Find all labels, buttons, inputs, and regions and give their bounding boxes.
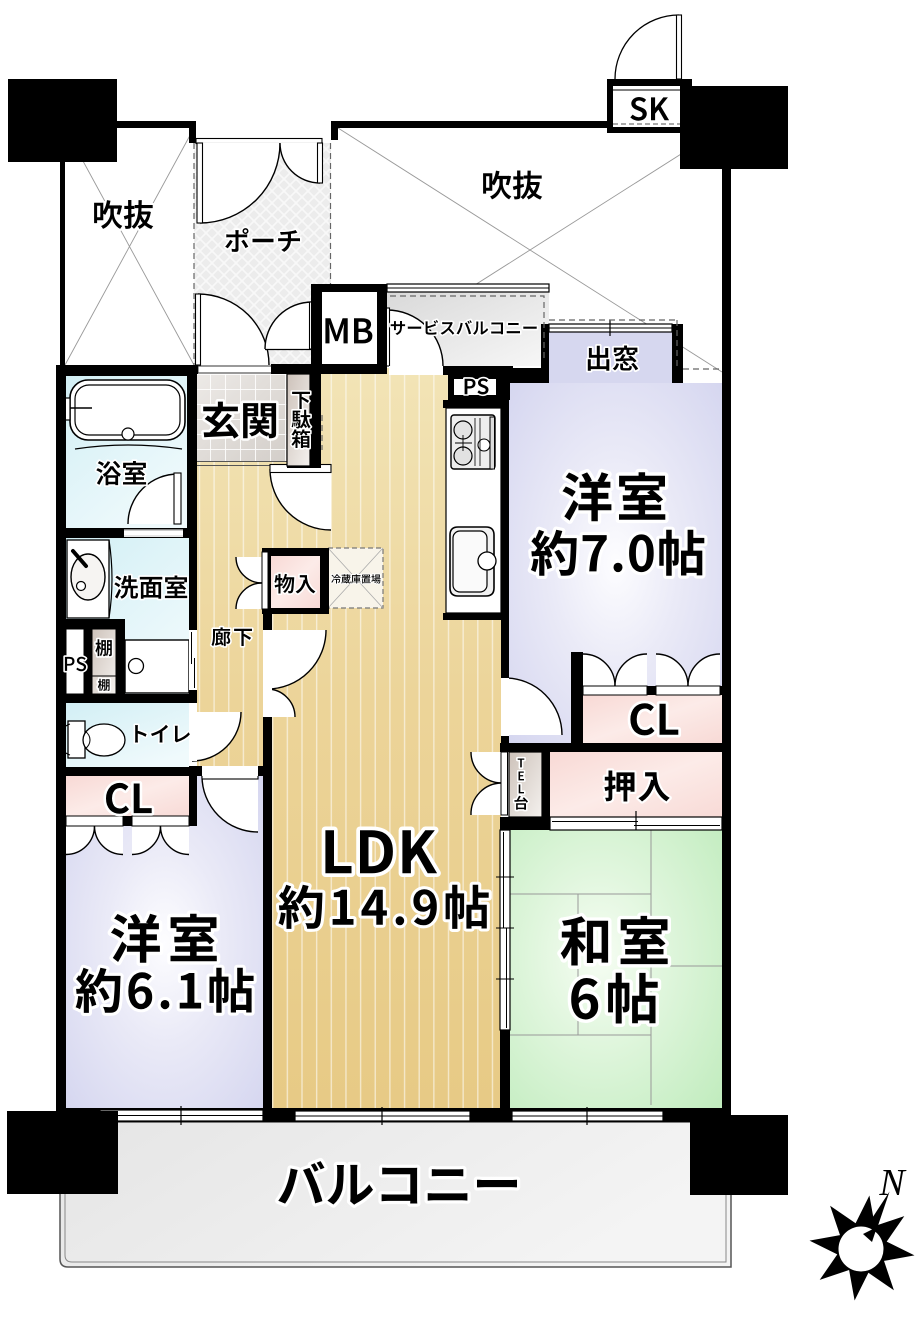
svg-text:N: N [878, 1162, 907, 1204]
